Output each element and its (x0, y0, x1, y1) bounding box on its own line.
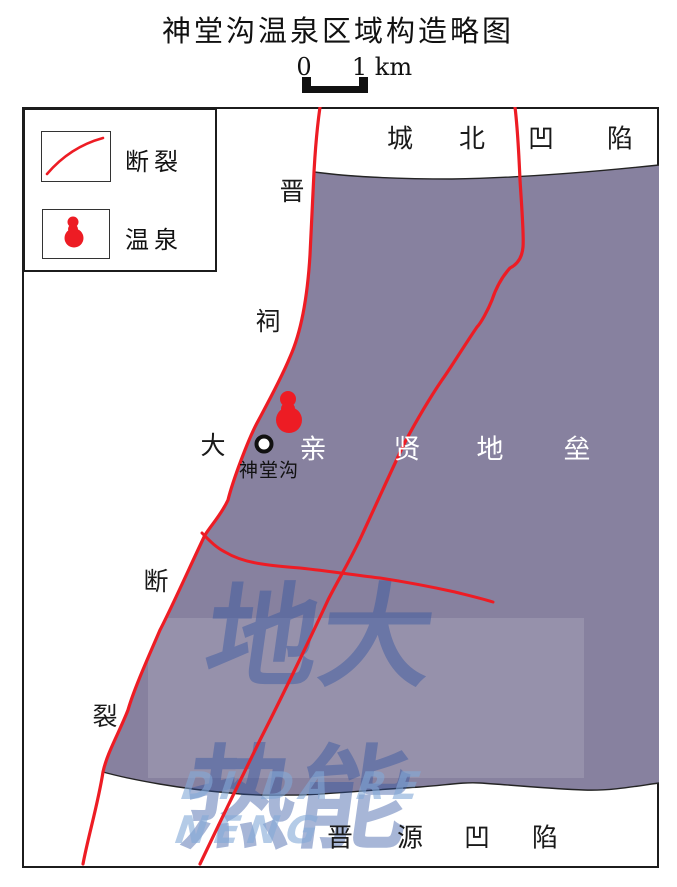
cross-fault-line (202, 533, 493, 602)
south-depression-char: 晋 (327, 818, 353, 855)
north-depression-char: 凹 (528, 119, 554, 156)
south-depression-char: 源 (397, 818, 423, 855)
south-depression-char: 陷 (532, 818, 558, 855)
horst-char: 亲 (300, 428, 327, 467)
spring-site-marker (257, 437, 272, 452)
south-depression-char: 凹 (464, 818, 490, 855)
scale-bar-icon (302, 77, 368, 93)
spring-site-label: 神堂沟 (239, 456, 299, 483)
horst-char: 垒 (564, 428, 591, 467)
fault-name-char: 断 (143, 562, 168, 598)
legend: 断裂 温泉 (23, 108, 217, 272)
fault-name-char: 大 (200, 426, 225, 462)
east-fault-line (200, 107, 523, 864)
hot-spring-icon (276, 391, 302, 433)
north-depression-char: 城 (387, 119, 413, 156)
horst-char: 贤 (394, 428, 421, 467)
hot-spring-icon (43, 210, 107, 255)
fault-name-char: 裂 (92, 697, 117, 733)
fault-name-char: 祠 (255, 302, 280, 338)
legend-fault-swatch (41, 131, 111, 182)
legend-fault-label: 断裂 (125, 142, 183, 177)
fault-name-char: 晋 (279, 172, 304, 208)
north-depression-char: 陷 (607, 119, 633, 156)
fault-line-icon (42, 132, 108, 179)
legend-spring-label: 温泉 (125, 220, 183, 255)
map-title: 神堂沟温泉区域构造略图 (162, 8, 514, 50)
legend-spring-swatch (42, 209, 110, 259)
north-depression-char: 北 (459, 119, 485, 156)
horst-char: 地 (477, 428, 504, 467)
